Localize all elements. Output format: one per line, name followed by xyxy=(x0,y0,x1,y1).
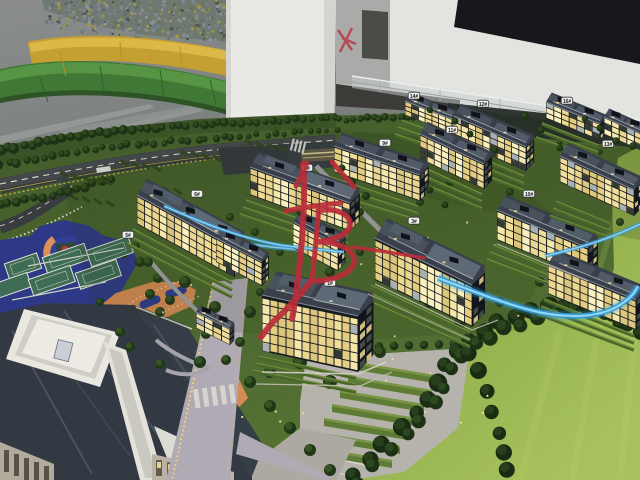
svg-text:9#: 9# xyxy=(382,141,388,147)
svg-text:10#: 10# xyxy=(525,192,534,198)
svg-text:11#: 11# xyxy=(448,128,456,134)
svg-text:3#: 3# xyxy=(411,219,417,225)
svg-text:12#: 12# xyxy=(479,102,488,108)
svg-text:16#: 16# xyxy=(563,99,572,105)
svg-text:5#: 5# xyxy=(125,233,131,239)
svg-text:6#: 6# xyxy=(194,192,200,198)
svg-text:13#: 13# xyxy=(604,142,613,148)
svg-text:14#: 14# xyxy=(410,94,419,100)
